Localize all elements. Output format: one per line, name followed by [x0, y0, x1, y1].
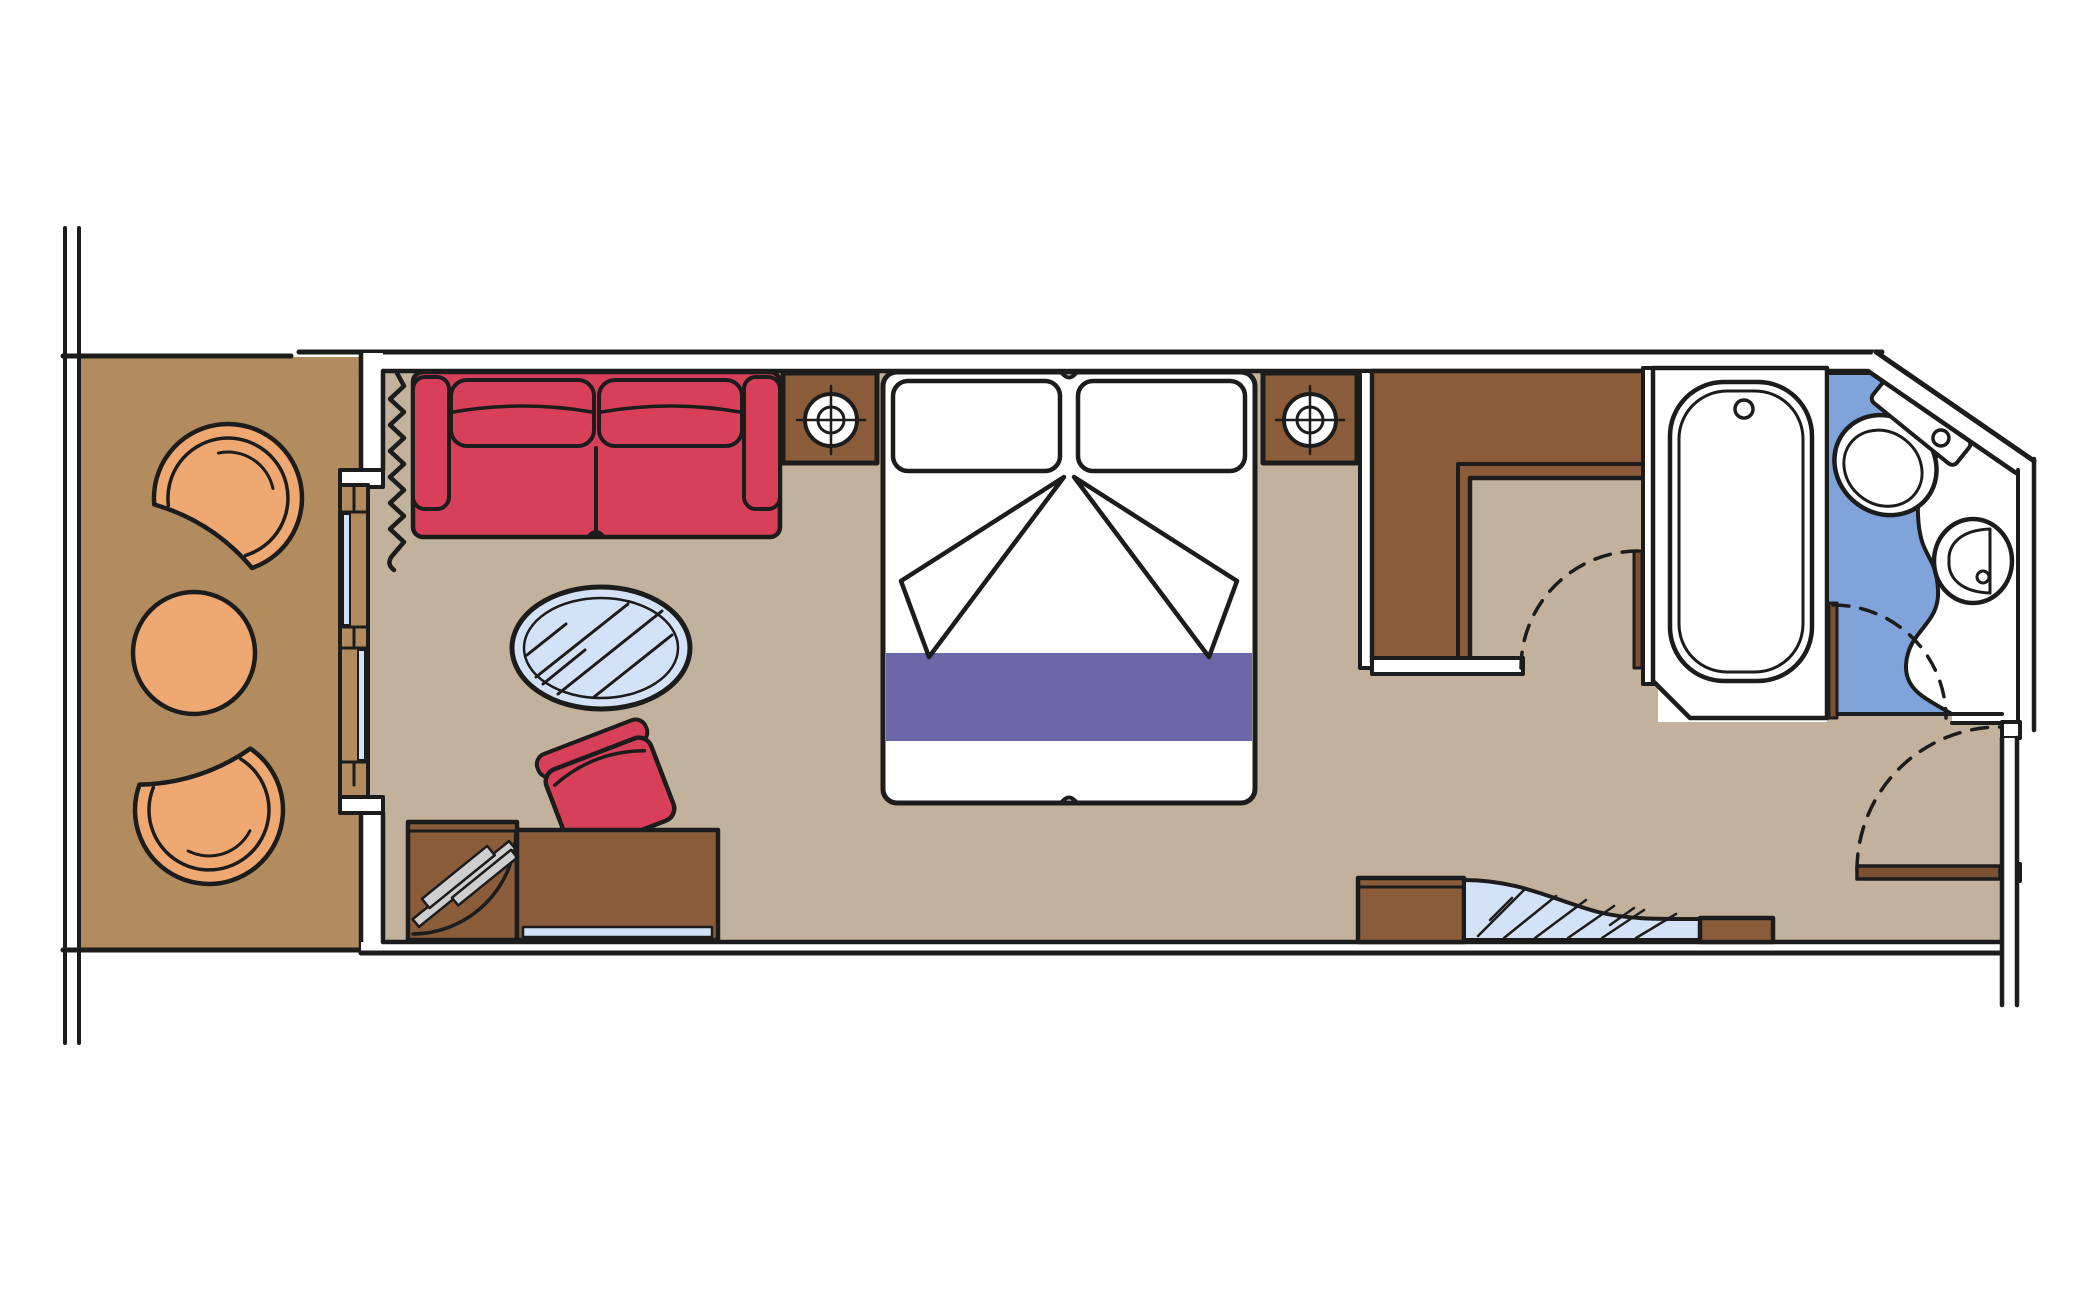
sofa: [413, 372, 780, 537]
ship-hull-lines: [65, 228, 79, 1043]
cabinet-block: [1700, 918, 1773, 942]
desk: [517, 830, 718, 940]
nook-wall: [1372, 658, 1523, 674]
sofa-back-cushion: [599, 380, 742, 446]
bathroom-right-wall: [2018, 459, 2034, 730]
wall-notch: [340, 797, 383, 813]
corridor-wall: [2002, 738, 2017, 1005]
glass-pane: [358, 650, 365, 760]
balcony-table: [133, 592, 255, 714]
door-jamb: [2002, 722, 2020, 738]
tv-cabinet: [406, 822, 520, 940]
nook-door: [1634, 551, 1642, 668]
drain-icon: [1977, 571, 1989, 583]
sofa-back-cushion: [451, 380, 594, 446]
dressing-nook-floor: [1470, 478, 1650, 668]
oval-glass-table: [512, 587, 690, 709]
nightstand: [1263, 373, 1357, 463]
pillow: [1078, 381, 1245, 471]
sofa-armrest: [413, 377, 449, 509]
bathroom-door: [1829, 603, 1837, 718]
glass-pane: [343, 514, 350, 625]
washbasin: [1934, 519, 2012, 603]
double-bed: [883, 372, 1255, 803]
sofa-armrest: [744, 377, 780, 509]
sliding-glass-door: [340, 485, 368, 797]
counter-bottom-wall: [1952, 714, 2002, 723]
entrance-door: [1857, 866, 2000, 879]
nightstand: [783, 373, 877, 463]
floor-plan-canvas: [0, 0, 2100, 1299]
drain-icon: [1735, 400, 1753, 418]
floor-plan: [0, 0, 2100, 1299]
bathtub: [1670, 382, 1812, 681]
bed-runner: [886, 653, 1252, 741]
pillow: [893, 381, 1060, 471]
desk-glass-strip: [523, 927, 712, 937]
